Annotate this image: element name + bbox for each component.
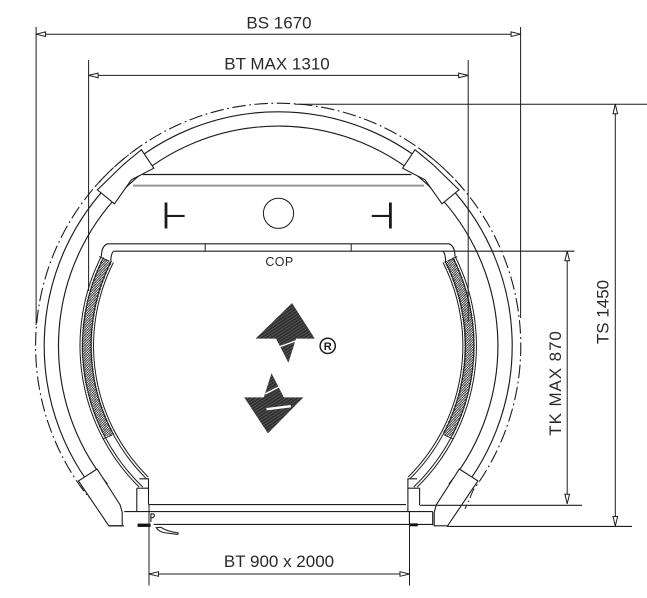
svg-text:BT MAX 1310: BT MAX 1310 — [224, 55, 330, 74]
svg-text:BS 1670: BS 1670 — [246, 13, 311, 32]
svg-text:TK MAX 870: TK MAX 870 — [546, 330, 565, 435]
svg-text:BT 900 x 2000: BT 900 x 2000 — [224, 552, 334, 571]
svg-text:TS 1450: TS 1450 — [594, 280, 613, 344]
svg-text:R: R — [324, 341, 332, 353]
svg-text:COP: COP — [265, 255, 293, 269]
